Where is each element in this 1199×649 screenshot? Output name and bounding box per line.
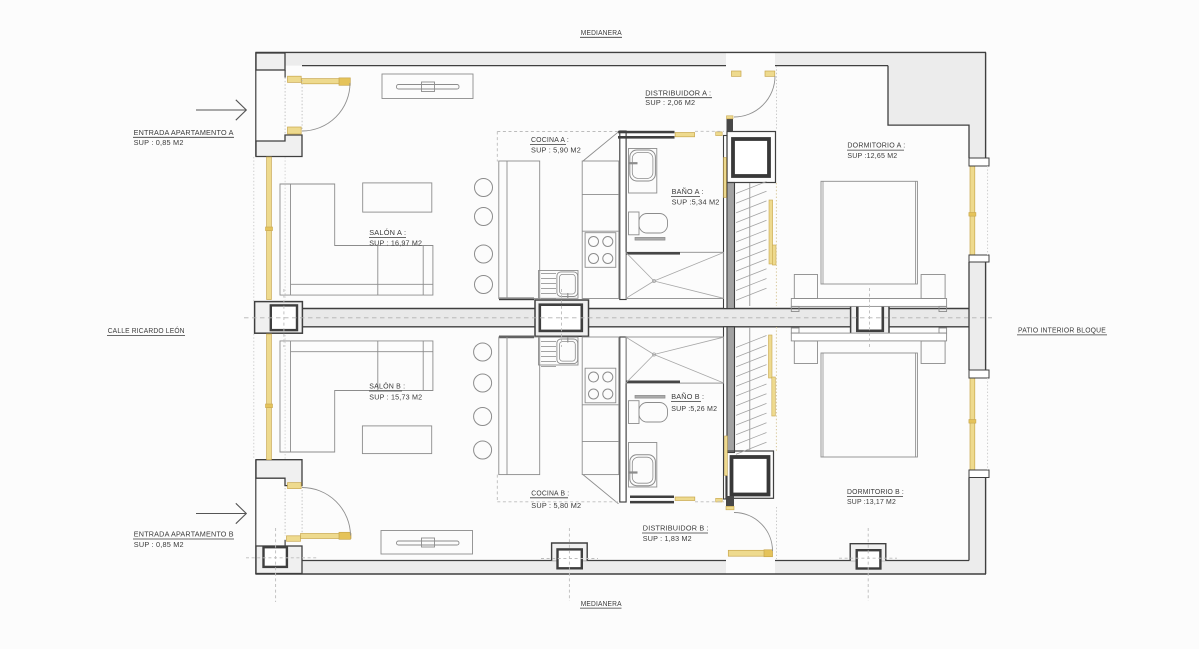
- svg-text:COCINA A :: COCINA A :: [531, 135, 569, 144]
- svg-text:BAÑO A :: BAÑO A :: [672, 187, 704, 196]
- svg-text:SUP :13,17 M2: SUP :13,17 M2: [847, 497, 896, 506]
- svg-text:SUP : 1,83 M2: SUP : 1,83 M2: [643, 534, 692, 543]
- svg-text:SUP : 0,85 M2: SUP : 0,85 M2: [134, 540, 184, 549]
- svg-text:PATIO INTERIOR BLOQUE: PATIO INTERIOR BLOQUE: [1018, 326, 1106, 335]
- svg-text:MEDIANERA: MEDIANERA: [581, 28, 622, 37]
- svg-text:SALÓN B :: SALÓN B :: [369, 382, 405, 391]
- svg-text:CALLE RICARDO LEÓN: CALLE RICARDO LEÓN: [108, 326, 185, 335]
- svg-text:SALÓN A :: SALÓN A :: [369, 228, 406, 237]
- svg-text:DISTRIBUIDOR A :: DISTRIBUIDOR A :: [645, 88, 711, 97]
- svg-text:DORMITORIO B :: DORMITORIO B :: [847, 487, 904, 496]
- svg-text:BAÑO B :: BAÑO B :: [671, 392, 704, 401]
- svg-text:ENTRADA APARTAMENTO A: ENTRADA APARTAMENTO A: [134, 128, 234, 137]
- svg-text:SUP :12,65 M2: SUP :12,65 M2: [847, 151, 897, 160]
- svg-text:SUP :5,34 M2: SUP :5,34 M2: [672, 198, 720, 207]
- svg-text:ENTRADA APARTAMENTO B: ENTRADA APARTAMENTO B: [134, 530, 234, 539]
- svg-text:SUP : 0,85 M2: SUP : 0,85 M2: [134, 138, 184, 147]
- svg-text:SUP : 5,80 M2: SUP : 5,80 M2: [531, 501, 581, 510]
- svg-text:SUP : 16,97 M2: SUP : 16,97 M2: [369, 239, 422, 248]
- svg-text:SUP : 2,06 M2: SUP : 2,06 M2: [645, 98, 695, 107]
- svg-text:DISTRIBUIDOR B :: DISTRIBUIDOR B :: [643, 524, 709, 533]
- svg-text:SUP : 5,90 M2: SUP : 5,90 M2: [531, 145, 581, 154]
- svg-text:MEDIANERA: MEDIANERA: [581, 599, 622, 608]
- svg-text:DORMITORIO A :: DORMITORIO A :: [847, 141, 905, 150]
- svg-text:SUP :5,26 M2: SUP :5,26 M2: [671, 404, 717, 413]
- svg-text:SUP : 15,73 M2: SUP : 15,73 M2: [369, 392, 422, 401]
- svg-text:COCINA B :: COCINA B :: [531, 488, 569, 497]
